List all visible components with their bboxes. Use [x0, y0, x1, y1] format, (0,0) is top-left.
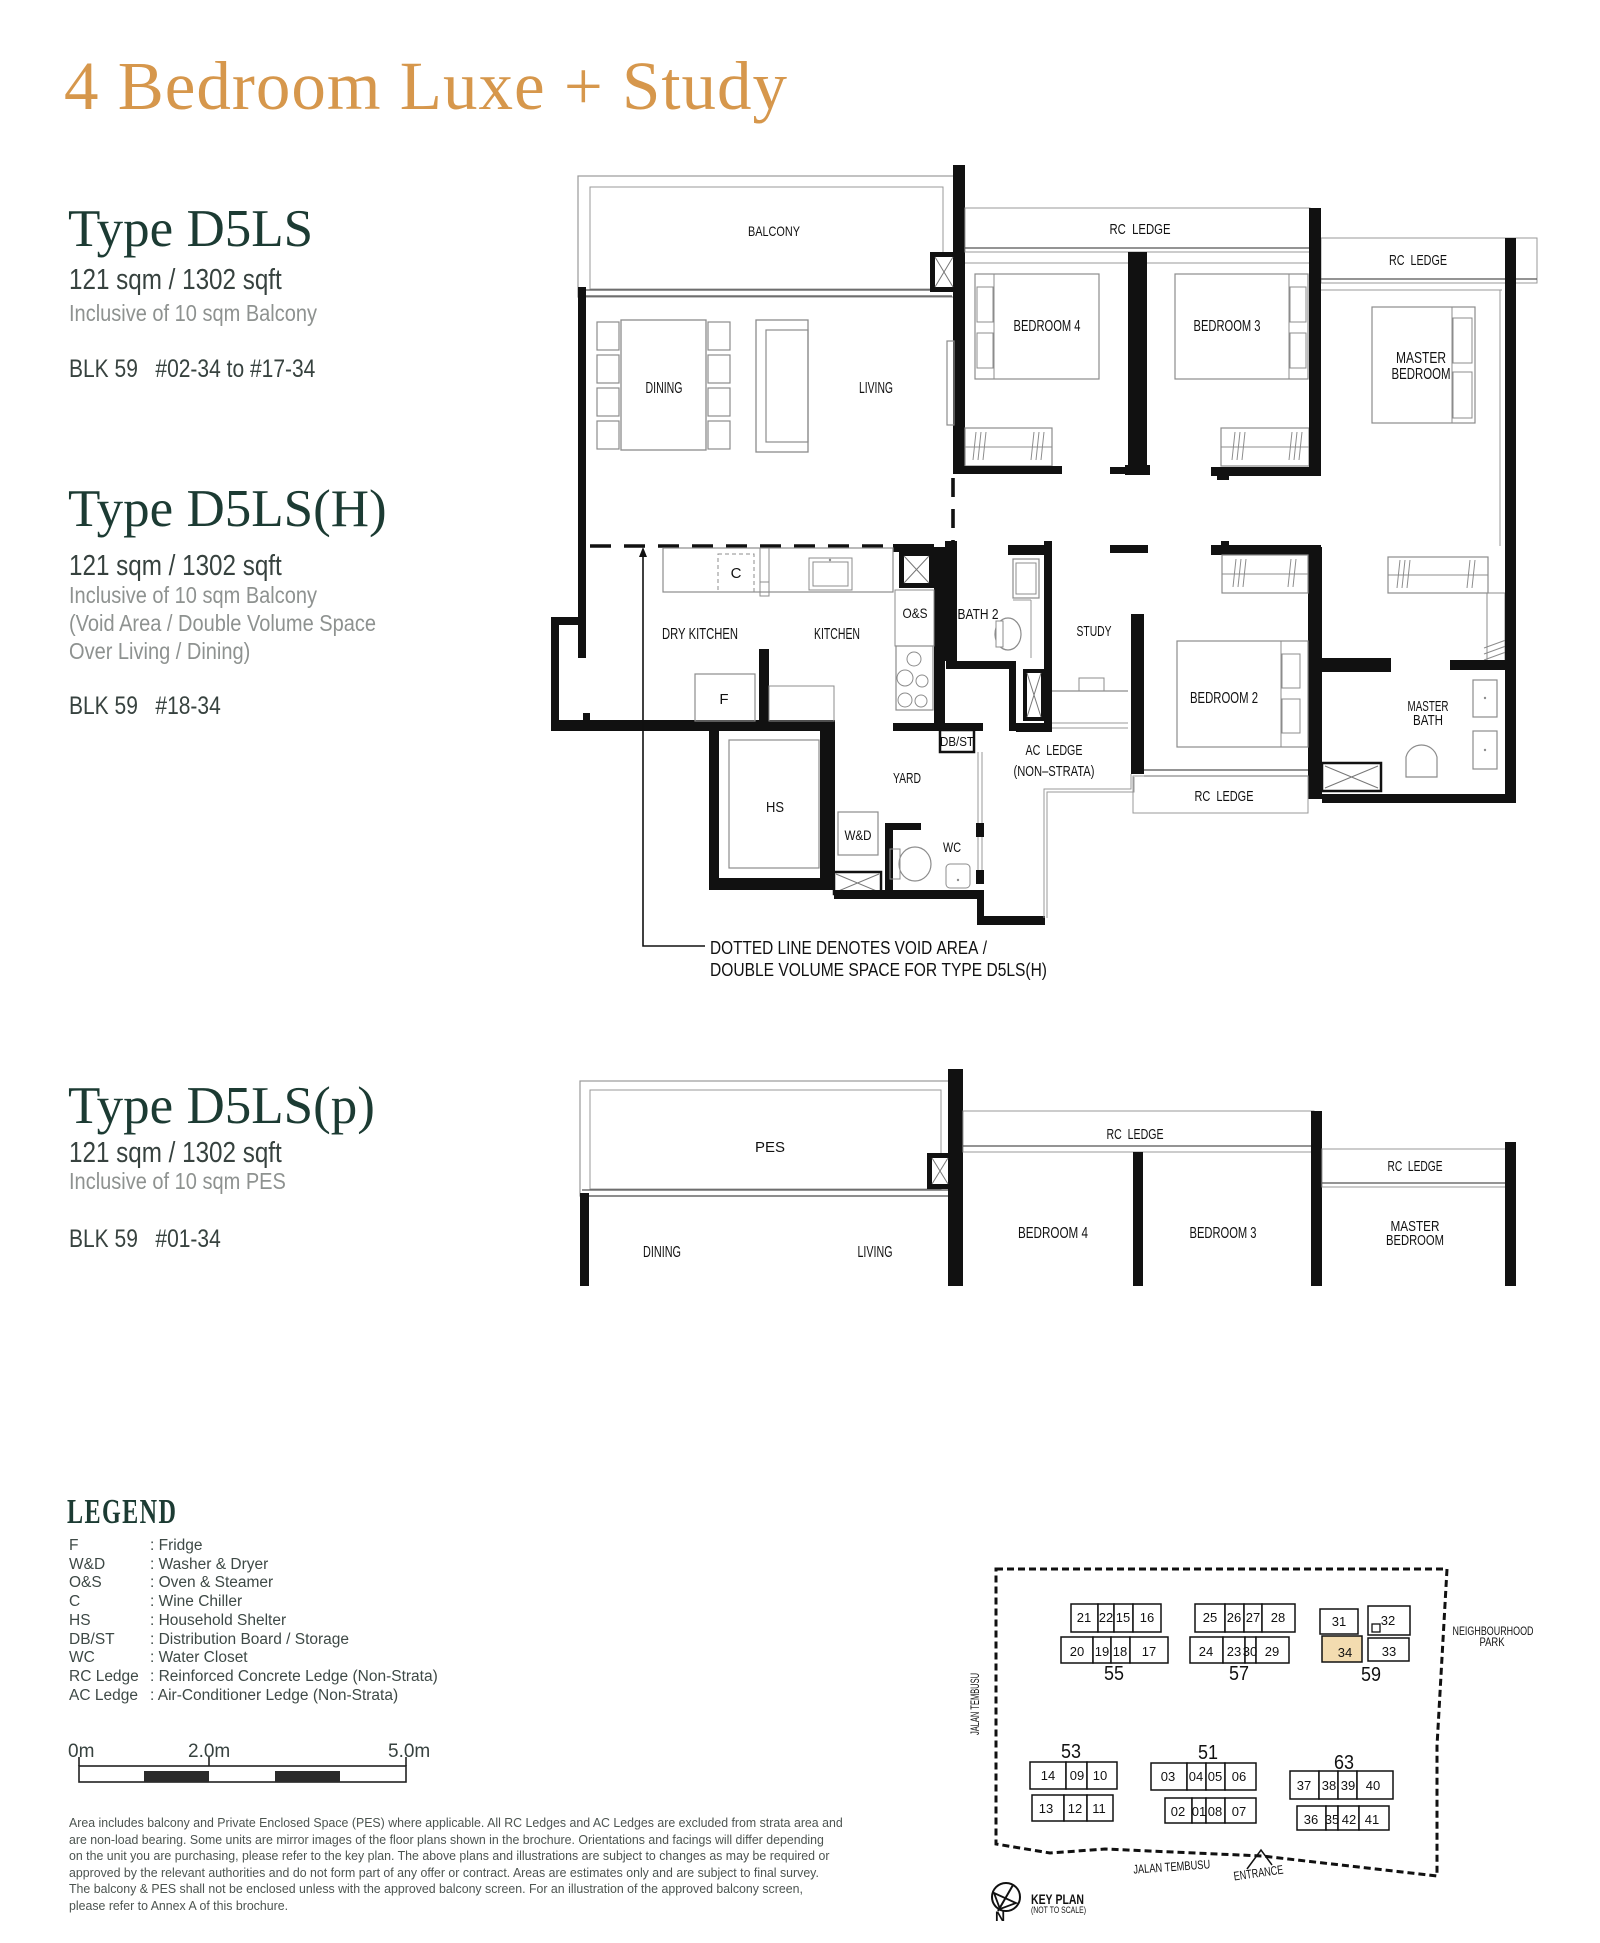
svg-text:(NON–STRATA): (NON–STRATA) [1014, 763, 1095, 780]
svg-text:38: 38 [1322, 1778, 1336, 1793]
svg-text:40: 40 [1366, 1778, 1380, 1793]
svg-text:63: 63 [1334, 1752, 1354, 1774]
svg-text:20: 20 [1070, 1644, 1084, 1659]
svg-text:WC: WC [943, 839, 961, 855]
svg-text:08: 08 [1208, 1804, 1222, 1819]
svg-text:DOTTED LINE DENOTES VOID AREA: DOTTED LINE DENOTES VOID AREA / [710, 938, 987, 958]
svg-text:BEDROOM 3: BEDROOM 3 [1190, 1225, 1257, 1242]
svg-text:F: F [719, 691, 728, 708]
svg-text:BEDROOM: BEDROOM [1392, 366, 1451, 383]
svg-text:24: 24 [1199, 1644, 1213, 1659]
svg-text:RC LEDGE: RC LEDGE [1195, 788, 1254, 805]
svg-text:11: 11 [1092, 1801, 1106, 1816]
svg-text:LIVING: LIVING [859, 380, 893, 397]
svg-text:04: 04 [1189, 1769, 1203, 1784]
svg-text:19: 19 [1095, 1644, 1109, 1659]
svg-text:(NOT TO SCALE): (NOT TO SCALE) [1031, 1905, 1086, 1915]
svg-text:36: 36 [1304, 1812, 1318, 1827]
svg-text:22: 22 [1099, 1610, 1113, 1625]
svg-text:RC LEDGE: RC LEDGE [1110, 221, 1171, 238]
svg-text:09: 09 [1070, 1768, 1084, 1783]
svg-text:DB/ST: DB/ST [940, 734, 974, 749]
svg-text:23: 23 [1227, 1644, 1241, 1659]
svg-text:BATH: BATH [1413, 712, 1443, 729]
svg-text:37: 37 [1297, 1778, 1311, 1793]
svg-text:32: 32 [1381, 1613, 1395, 1628]
svg-text:KITCHEN: KITCHEN [814, 626, 860, 643]
svg-text:01: 01 [1192, 1804, 1206, 1819]
svg-text:O&S: O&S [903, 605, 928, 621]
svg-text:JALAN TEMBUSU: JALAN TEMBUSU [968, 1673, 982, 1735]
svg-text:BATH 2: BATH 2 [958, 606, 999, 623]
svg-text:35: 35 [1325, 1812, 1339, 1827]
svg-text:DINING: DINING [643, 1244, 681, 1261]
svg-text:55: 55 [1104, 1663, 1124, 1685]
svg-text:STUDY: STUDY [1077, 623, 1112, 640]
svg-text:BEDROOM 3: BEDROOM 3 [1194, 318, 1261, 335]
svg-text:RC LEDGE: RC LEDGE [1388, 1158, 1443, 1175]
svg-text:51: 51 [1198, 1742, 1218, 1764]
svg-text:DRY KITCHEN: DRY KITCHEN [662, 626, 738, 643]
svg-text:N: N [995, 1908, 1005, 1924]
svg-text:57: 57 [1229, 1663, 1249, 1685]
svg-text:27: 27 [1246, 1610, 1260, 1625]
svg-text:41: 41 [1365, 1812, 1379, 1827]
svg-text:ENTRANCE: ENTRANCE [1233, 1863, 1284, 1884]
svg-text:34: 34 [1338, 1645, 1352, 1660]
svg-text:18: 18 [1113, 1644, 1127, 1659]
svg-text:30: 30 [1243, 1644, 1257, 1659]
svg-text:BEDROOM 4: BEDROOM 4 [1018, 1225, 1088, 1242]
svg-text:42: 42 [1342, 1812, 1356, 1827]
svg-text:BEDROOM: BEDROOM [1386, 1232, 1444, 1249]
svg-text:YARD: YARD [893, 770, 921, 787]
svg-text:13: 13 [1039, 1801, 1053, 1816]
svg-text:BALCONY: BALCONY [748, 223, 801, 239]
svg-text:RC LEDGE: RC LEDGE [1107, 1126, 1164, 1143]
svg-text:26: 26 [1227, 1610, 1241, 1625]
svg-text:C: C [731, 565, 742, 582]
svg-text:PES: PES [755, 1139, 785, 1156]
svg-text:21: 21 [1077, 1610, 1091, 1625]
svg-text:02: 02 [1171, 1804, 1185, 1819]
svg-text:14: 14 [1041, 1768, 1055, 1783]
svg-text:28: 28 [1271, 1610, 1285, 1625]
svg-text:RC LEDGE: RC LEDGE [1389, 252, 1447, 269]
svg-text:07: 07 [1232, 1804, 1246, 1819]
svg-text:53: 53 [1061, 1741, 1081, 1763]
svg-text:33: 33 [1382, 1644, 1396, 1659]
svg-text:16: 16 [1140, 1610, 1154, 1625]
svg-text:W&D: W&D [845, 827, 872, 843]
svg-text:39: 39 [1341, 1778, 1355, 1793]
svg-text:AC LEDGE: AC LEDGE [1026, 742, 1083, 759]
svg-text:03: 03 [1161, 1769, 1175, 1784]
svg-text:BEDROOM 2: BEDROOM 2 [1190, 690, 1258, 707]
svg-text:PARK: PARK [1480, 1635, 1505, 1649]
svg-text:JALAN TEMBUSU: JALAN TEMBUSU [1133, 1857, 1211, 1876]
svg-text:BEDROOM 4: BEDROOM 4 [1014, 318, 1081, 335]
svg-text:15: 15 [1116, 1610, 1130, 1625]
svg-text:59: 59 [1361, 1664, 1381, 1686]
svg-text:HS: HS [766, 799, 784, 816]
svg-text:25: 25 [1203, 1610, 1217, 1625]
svg-text:LIVING: LIVING [858, 1244, 893, 1261]
svg-text:DOUBLE VOLUME SPACE FOR TYPE D: DOUBLE VOLUME SPACE FOR TYPE D5LS(H) [710, 960, 1047, 980]
svg-text:10: 10 [1093, 1768, 1107, 1783]
svg-text:12: 12 [1068, 1801, 1082, 1816]
svg-text:29: 29 [1265, 1644, 1279, 1659]
svg-text:17: 17 [1142, 1644, 1156, 1659]
svg-text:31: 31 [1332, 1614, 1346, 1629]
svg-text:05: 05 [1208, 1769, 1222, 1784]
svg-text:06: 06 [1232, 1769, 1246, 1784]
svg-text:DINING: DINING [646, 380, 683, 397]
svg-text:MASTER: MASTER [1396, 350, 1446, 367]
